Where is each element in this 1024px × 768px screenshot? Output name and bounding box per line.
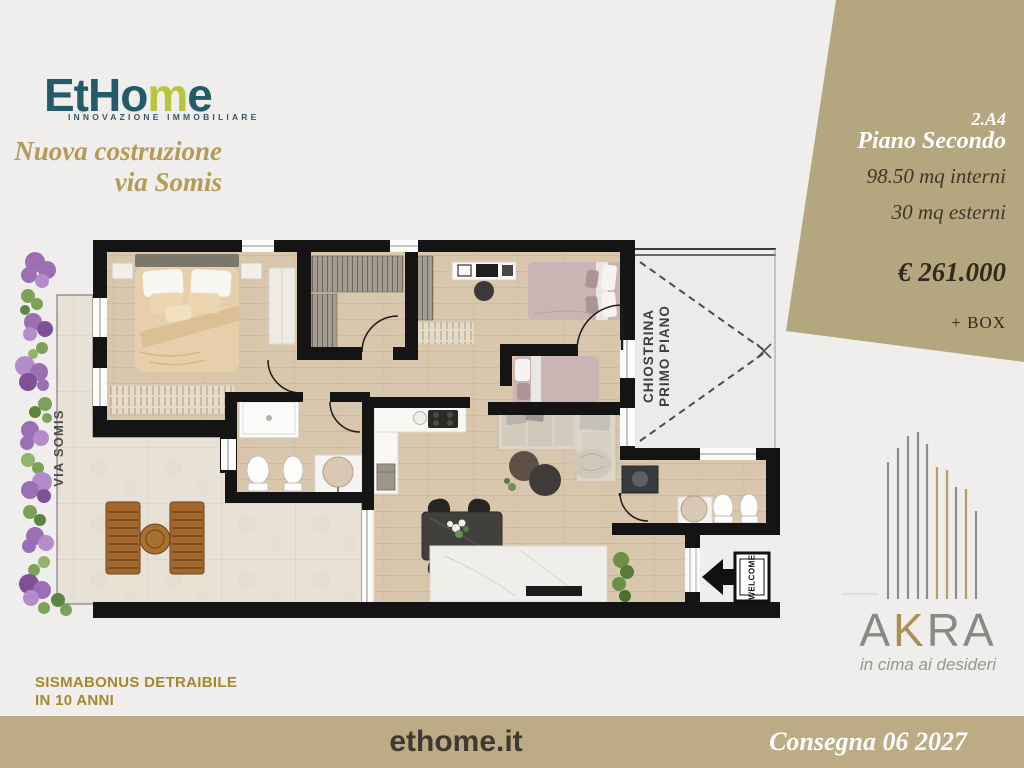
- courtyard-chiostrina: CHIOSTRINA PRIMO PIANO: [635, 249, 776, 448]
- akra-slogan: in cima ai desideri: [860, 655, 997, 674]
- bonus-line2: IN 10 ANNI: [35, 692, 237, 710]
- street-label: VIA SOMIS: [51, 409, 66, 487]
- window: [93, 368, 107, 406]
- toilet: [247, 456, 269, 484]
- akra-building-lines: [888, 432, 976, 599]
- bedroom2-bed: [528, 262, 622, 320]
- listing-headline: Nuova costruzione via Somis: [0, 136, 222, 197]
- nightstand: [112, 263, 133, 279]
- entrance-door-gap: [685, 548, 700, 592]
- interior-area: 98.50 mq interni: [780, 164, 1006, 189]
- floor-name: Piano Secondo: [780, 128, 1006, 154]
- delivery-date: Consegna 06 2027: [769, 727, 967, 757]
- nightstand: [241, 263, 262, 279]
- glass-wall: [362, 510, 372, 602]
- cooktop: [428, 410, 458, 428]
- window: [620, 408, 635, 446]
- coffee-table: [529, 464, 561, 496]
- window: [242, 240, 274, 252]
- sismabonus-note: SISMABONUS DETRAIBILE IN 10 ANNI: [35, 674, 237, 710]
- entrance: WELCOME: [702, 553, 769, 601]
- kitchen-sink: [414, 412, 427, 425]
- courtyard-label-line2: PRIMO PIANO: [657, 305, 672, 407]
- headline-line1: Nuova costruzione: [0, 136, 222, 167]
- website-link[interactable]: ethome.it: [389, 725, 522, 759]
- box-extra: + BOX: [780, 313, 1006, 333]
- courtyard-label-line1: CHIOSTRINA: [641, 309, 656, 403]
- window: [390, 240, 418, 252]
- doormat-label: WELCOME: [748, 554, 757, 599]
- wardrobe-white: [269, 268, 295, 344]
- price: € 261.000: [780, 257, 1006, 288]
- bonus-line1: SISMABONUS DETRAIBILE: [35, 674, 237, 692]
- double-bed: [135, 254, 241, 372]
- unit-code: 2.A4: [780, 110, 1006, 128]
- doormat: WELCOME: [735, 553, 769, 601]
- brand-tagline: INNOVAZIONE IMMOBILIARE: [68, 112, 260, 122]
- akra-wordmark: AKRA: [859, 604, 996, 656]
- terrace-table: [140, 524, 170, 554]
- tv-console: [430, 546, 607, 602]
- round-sink: [681, 496, 707, 522]
- window: [93, 295, 107, 340]
- tv: [526, 586, 582, 596]
- desk-chair: [474, 281, 494, 301]
- exterior-area: 30 mq esterni: [780, 200, 1006, 225]
- terrace-door: [221, 439, 236, 470]
- window: [700, 448, 756, 460]
- info-panel: 2.A4 Piano Secondo 98.50 mq interni 30 m…: [780, 110, 1006, 333]
- bidet: [283, 456, 303, 484]
- bedroom-rug: [110, 385, 235, 414]
- round-sink: [323, 457, 353, 487]
- akra-logo: AKRA in cima ai desideri: [842, 432, 997, 674]
- headline-line2: via Somis: [0, 167, 222, 198]
- bedroom3-bed: [513, 356, 599, 404]
